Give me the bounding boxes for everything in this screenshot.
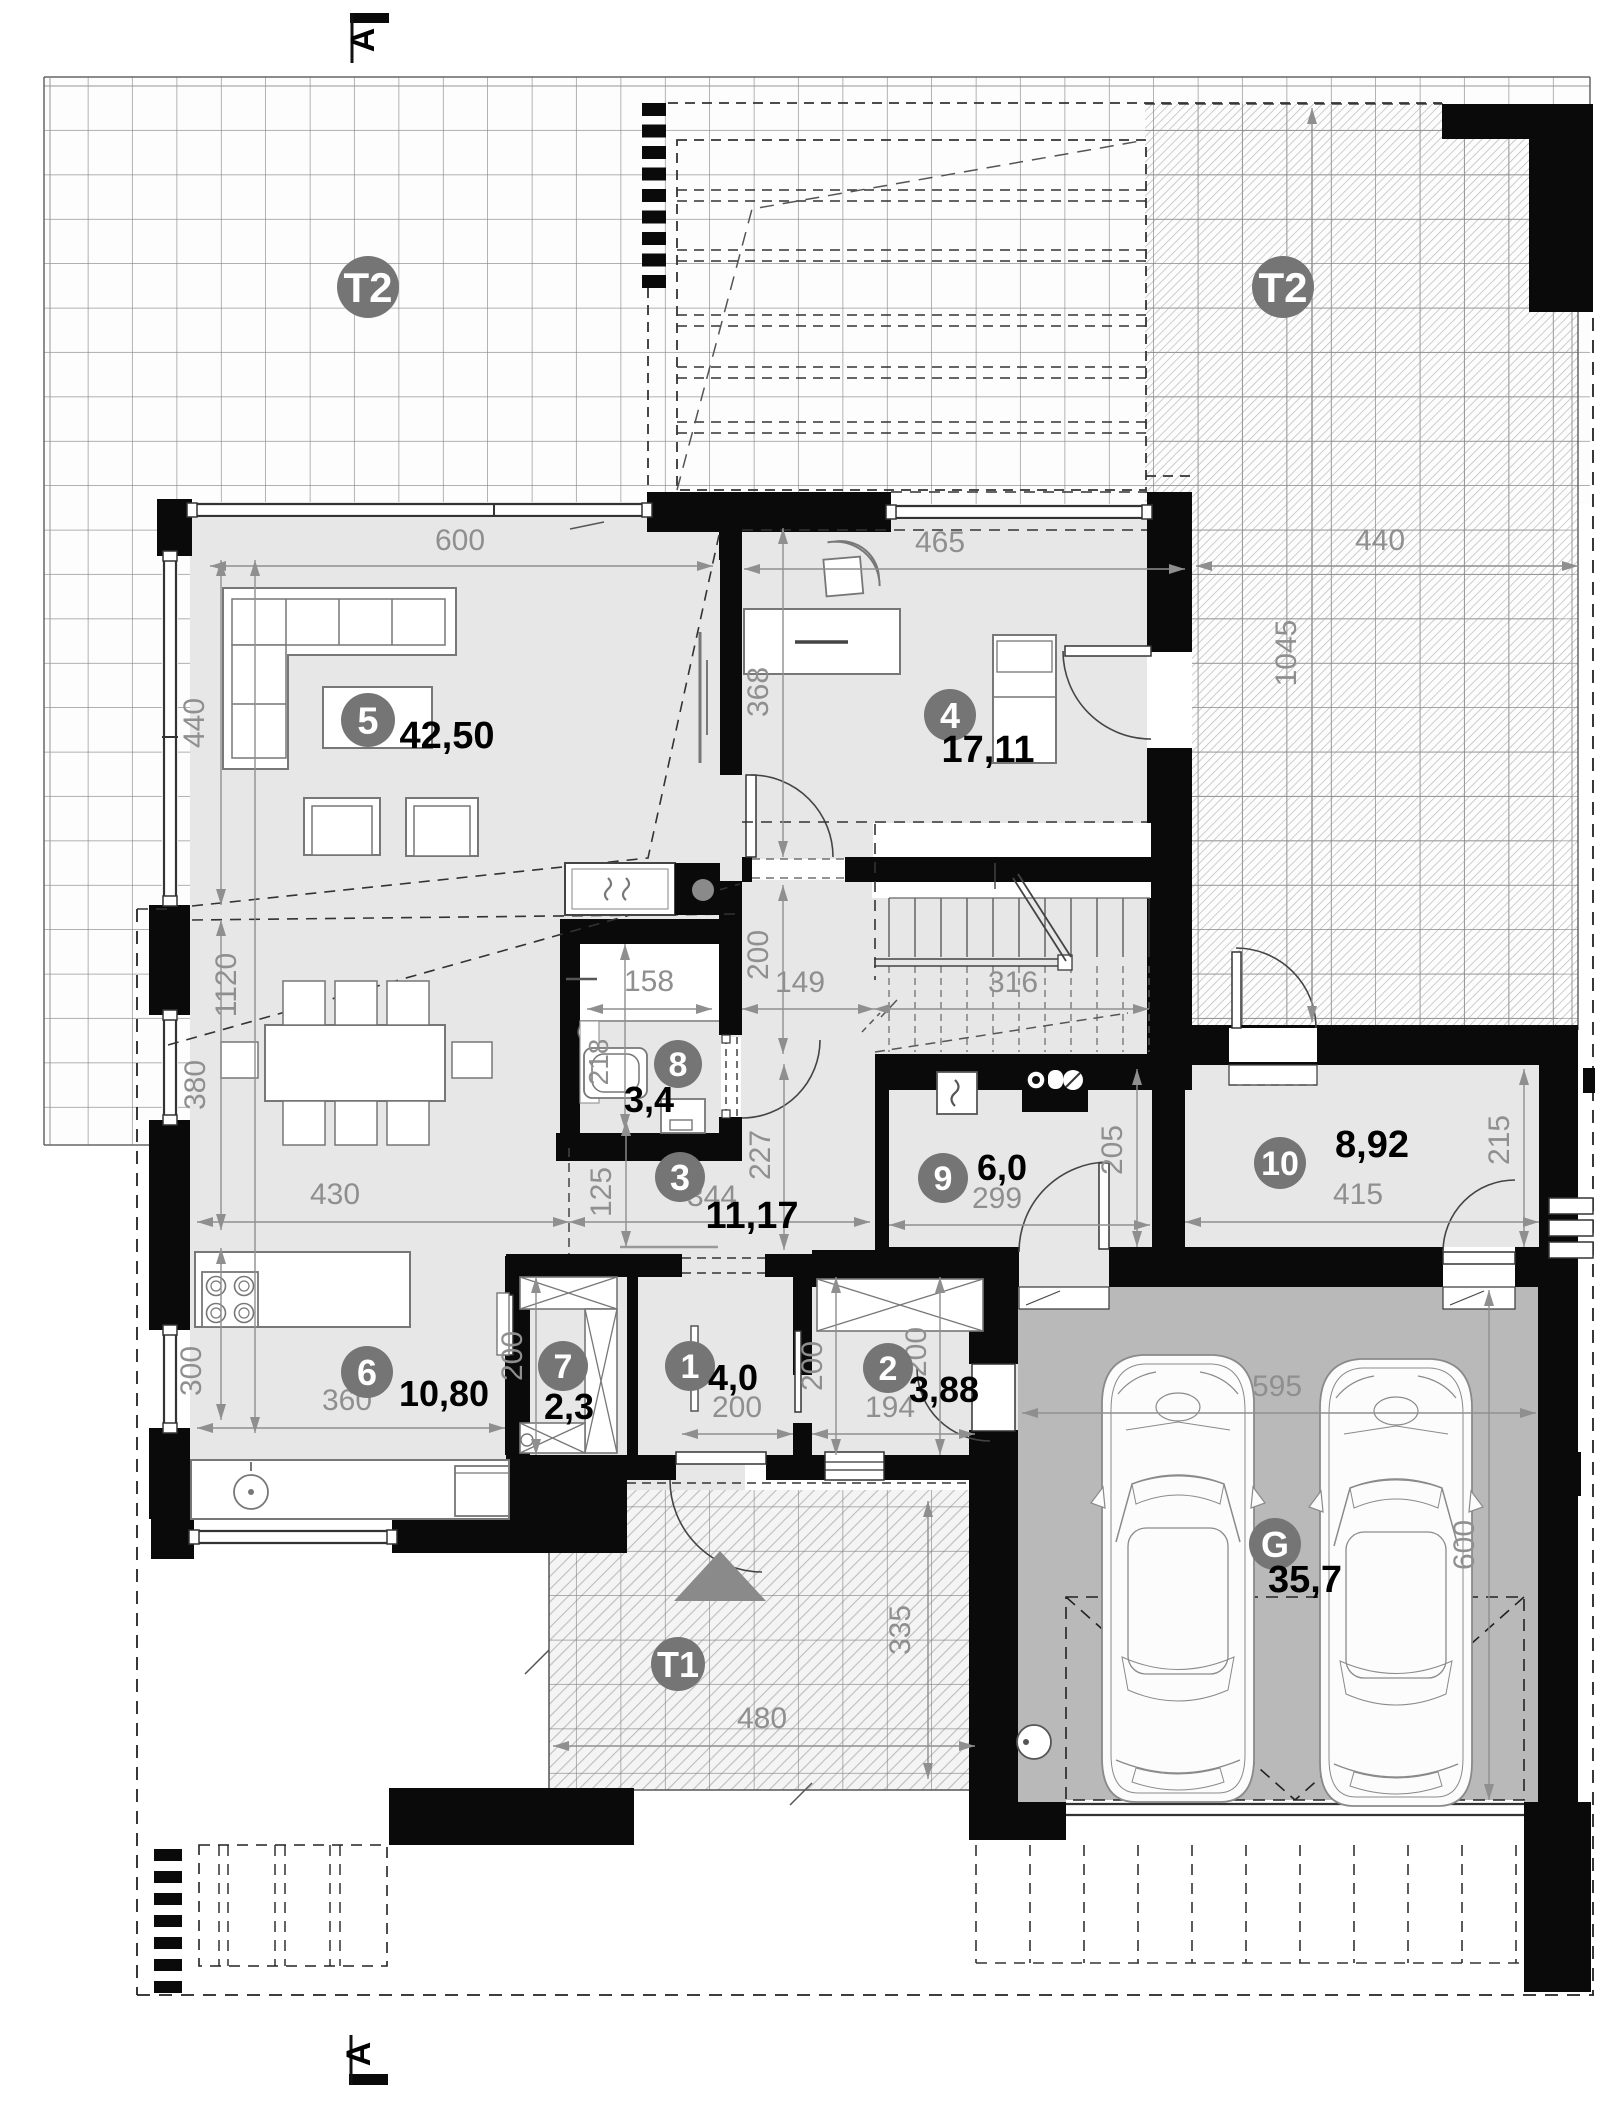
- svg-text:2: 2: [879, 1350, 898, 1388]
- svg-text:9: 9: [934, 1160, 953, 1198]
- svg-text:335: 335: [884, 1605, 917, 1655]
- svg-text:300: 300: [175, 1346, 208, 1396]
- svg-text:3: 3: [670, 1157, 690, 1198]
- svg-text:3,88: 3,88: [909, 1369, 979, 1410]
- svg-text:10,80: 10,80: [399, 1373, 489, 1414]
- svg-text:10: 10: [1261, 1145, 1299, 1183]
- svg-text:215: 215: [1483, 1115, 1516, 1165]
- svg-text:T1: T1: [657, 1644, 699, 1685]
- svg-text:200: 200: [796, 1341, 829, 1391]
- svg-text:A: A: [340, 2042, 378, 2067]
- svg-text:125: 125: [585, 1167, 618, 1217]
- svg-text:595: 595: [1252, 1370, 1302, 1403]
- svg-text:158: 158: [624, 965, 674, 998]
- svg-text:218: 218: [583, 1039, 614, 1086]
- svg-text:430: 430: [310, 1178, 360, 1211]
- svg-text:194: 194: [865, 1391, 915, 1424]
- svg-text:6,0: 6,0: [977, 1147, 1027, 1188]
- svg-text:1120: 1120: [210, 953, 243, 1018]
- svg-text:368: 368: [742, 667, 775, 717]
- svg-text:205: 205: [1096, 1125, 1129, 1175]
- svg-text:T2: T2: [1258, 264, 1307, 311]
- svg-text:227: 227: [744, 1130, 777, 1180]
- svg-text:440: 440: [178, 698, 211, 748]
- svg-text:5: 5: [357, 701, 378, 743]
- svg-text:11,17: 11,17: [706, 1195, 799, 1237]
- svg-text:600: 600: [435, 524, 485, 557]
- svg-text:35,7: 35,7: [1268, 1559, 1342, 1601]
- svg-text:A: A: [344, 28, 382, 53]
- svg-text:1045: 1045: [1270, 620, 1303, 687]
- svg-text:42,50: 42,50: [399, 715, 494, 757]
- svg-text:4,0: 4,0: [708, 1357, 758, 1398]
- svg-text:415: 415: [1333, 1178, 1383, 1211]
- svg-text:1: 1: [681, 1348, 700, 1386]
- svg-text:380: 380: [179, 1060, 212, 1110]
- svg-text:3,4: 3,4: [624, 1079, 674, 1120]
- svg-text:200: 200: [496, 1331, 529, 1381]
- svg-text:149: 149: [775, 966, 825, 999]
- svg-text:316: 316: [988, 966, 1038, 999]
- svg-text:480: 480: [737, 1702, 787, 1735]
- svg-text:465: 465: [915, 526, 965, 559]
- svg-text:7: 7: [554, 1348, 573, 1386]
- svg-text:440: 440: [1355, 524, 1405, 557]
- svg-text:17,11: 17,11: [942, 729, 1035, 771]
- svg-text:2,3: 2,3: [544, 1386, 594, 1427]
- svg-text:8,92: 8,92: [1335, 1124, 1409, 1166]
- svg-text:T2: T2: [343, 264, 392, 311]
- svg-text:200: 200: [742, 930, 775, 980]
- svg-text:6: 6: [357, 1352, 377, 1393]
- svg-text:600: 600: [1448, 1520, 1481, 1570]
